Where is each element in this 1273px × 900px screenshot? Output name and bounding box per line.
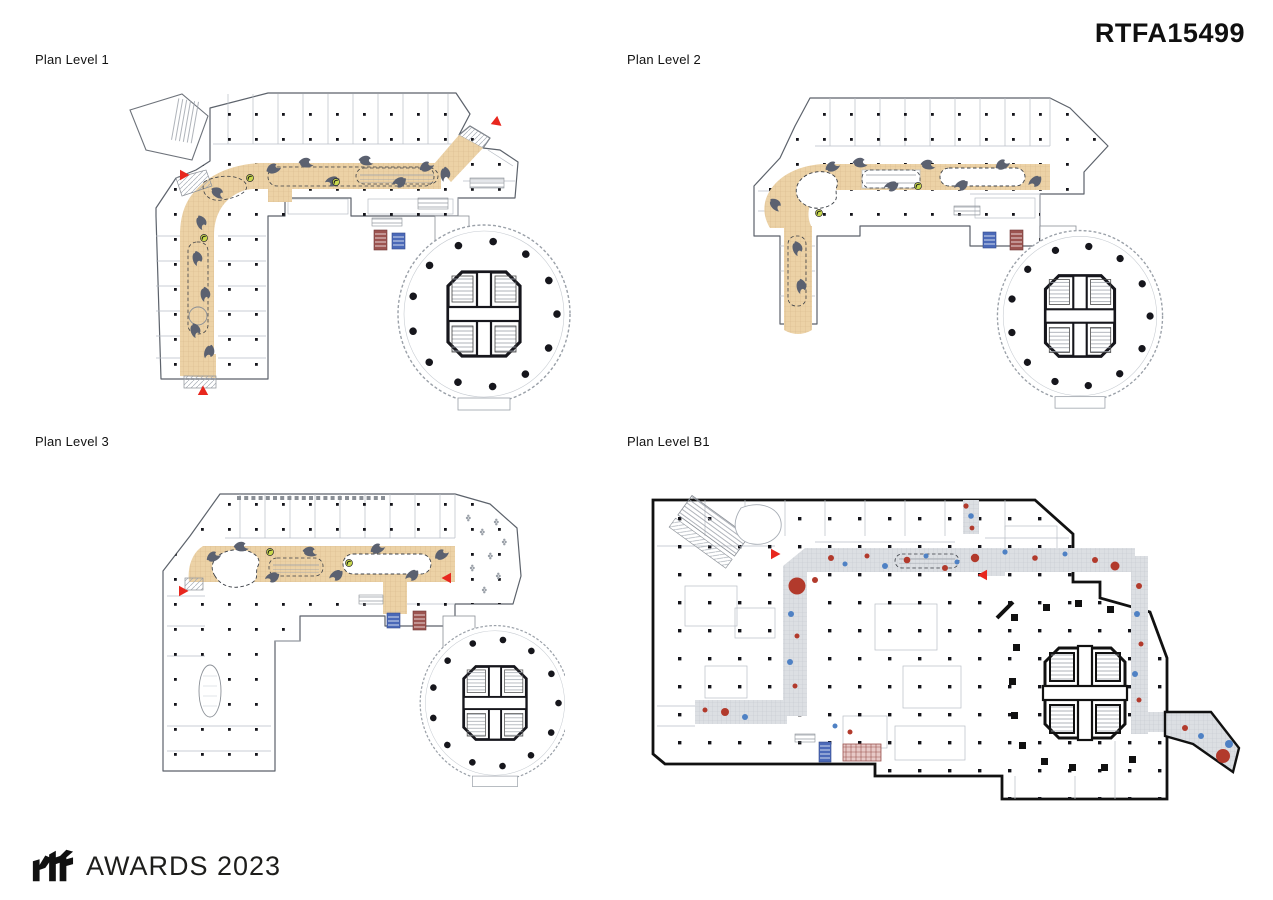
plan-level-3-drawing: [145, 476, 565, 803]
project-code: RTFA15499: [1095, 18, 1245, 49]
tower-plan: [997, 231, 1162, 409]
plan-level-1-drawing: [118, 86, 586, 413]
plan-label-level-1: Plan Level 1: [35, 52, 109, 67]
plan-label-level-b1: Plan Level B1: [627, 434, 710, 449]
plan-panel-level-2: [740, 86, 1168, 413]
tower-plan: [398, 225, 570, 410]
rtf-logo: [30, 846, 74, 886]
footer: AWARDS 2023: [30, 846, 281, 886]
tree-symbol: [247, 175, 254, 182]
plan-panel-level-3: [145, 476, 565, 803]
entry-marker-icon: [491, 116, 505, 130]
plan-label-level-2: Plan Level 2: [627, 52, 701, 67]
tree-symbol: [816, 210, 823, 217]
drawing-sheet: RTFA15499 Plan Level 1 Plan Level 2 Plan…: [0, 0, 1273, 900]
tree-symbol: [346, 560, 353, 567]
plan-panel-level-1: [118, 86, 586, 413]
awards-text: AWARDS 2023: [86, 851, 281, 882]
plan-label-level-3: Plan Level 3: [35, 434, 109, 449]
tree-symbol: [201, 235, 208, 242]
detached-structure: [130, 94, 208, 160]
tree-symbol: [915, 183, 922, 190]
plan-level-b1-drawing: [645, 486, 1241, 808]
tower-plan: [420, 626, 565, 787]
plan-level-2-drawing: [740, 86, 1168, 413]
tree-symbol: [333, 179, 340, 186]
tree-symbol: [267, 549, 274, 556]
plan-panel-level-b1: [645, 486, 1241, 808]
